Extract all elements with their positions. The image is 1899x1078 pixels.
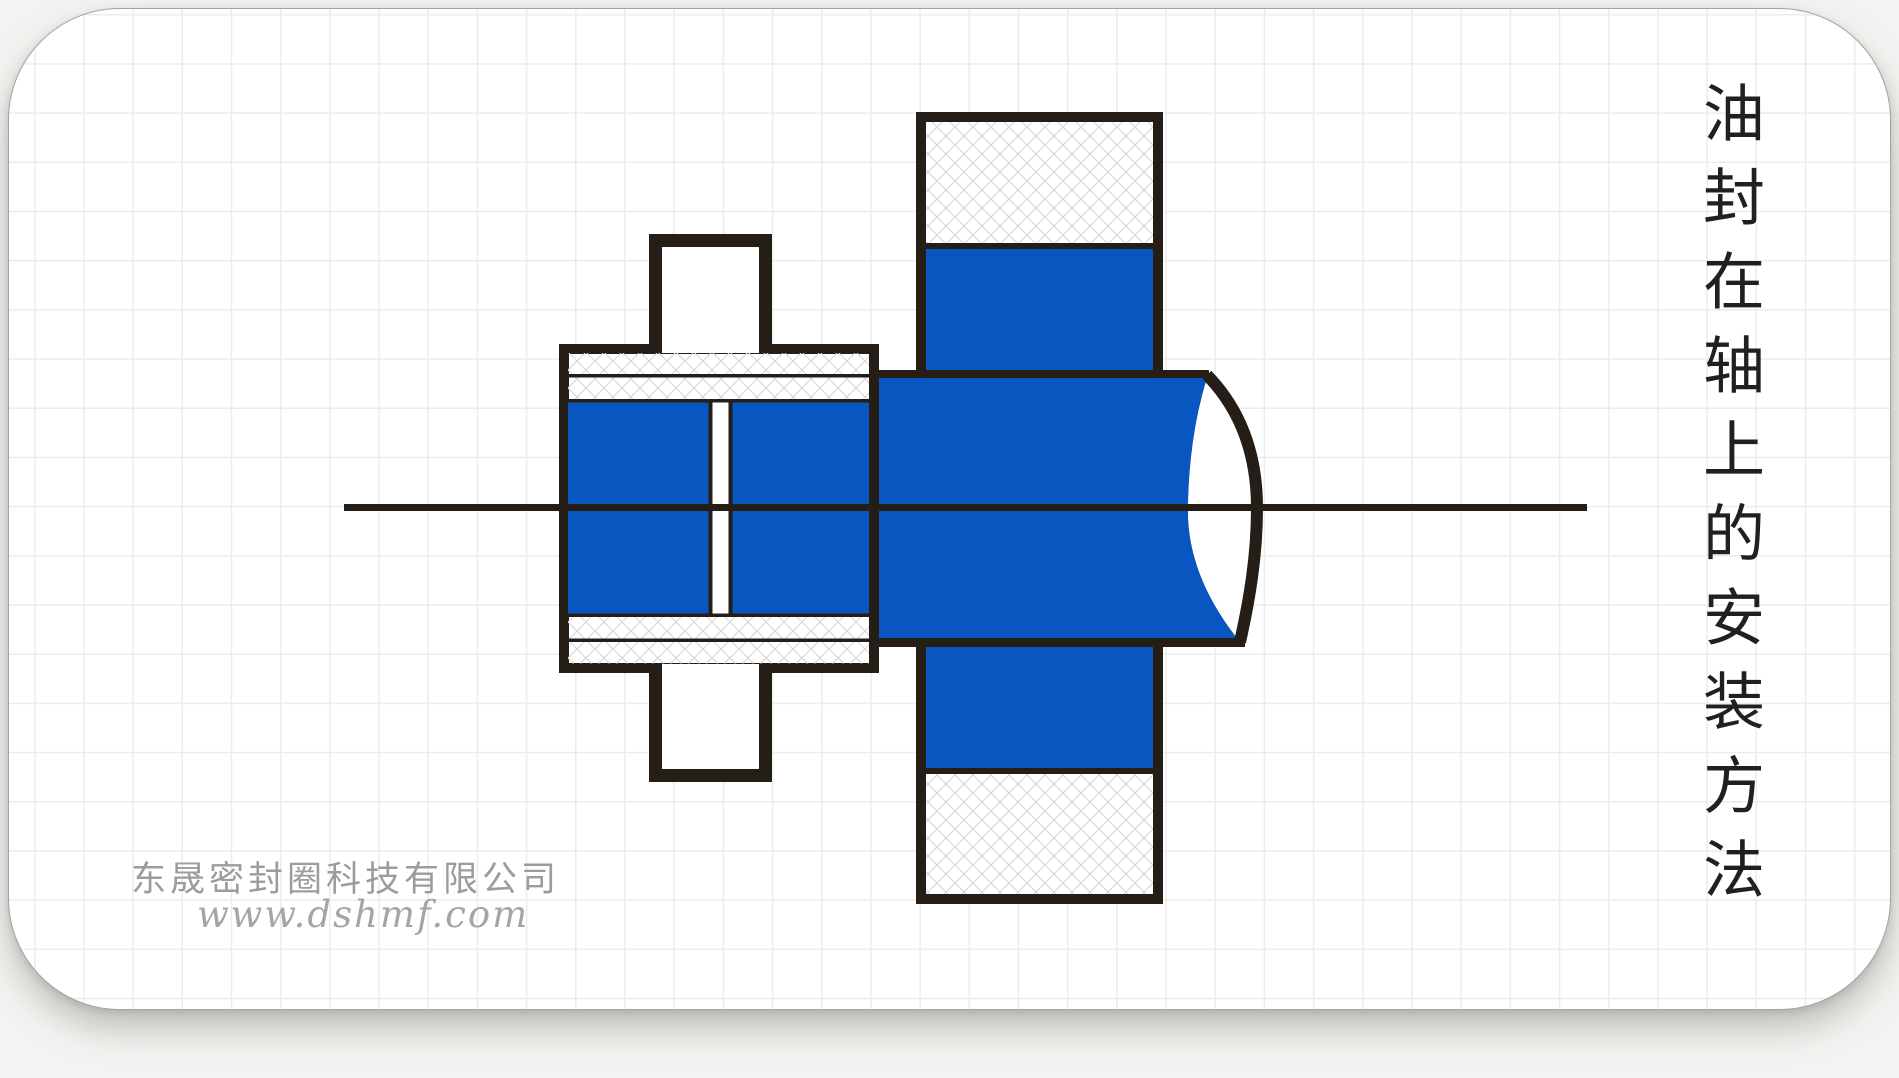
- housing-divider-bottom: [926, 768, 1153, 774]
- clearance-gap-top: [879, 342, 916, 370]
- housing-divider-top: [926, 243, 1153, 249]
- graph-paper-card: 油封在轴上的安装方法 东晟密封圈科技有限公司 www.dshmf.com: [8, 8, 1891, 1010]
- housing-hatch-top: [926, 122, 1153, 244]
- seal-top-tab: [656, 241, 766, 354]
- shaft-axis-centerline: [344, 504, 1587, 511]
- seal-bottom-tab: [656, 664, 766, 776]
- seal-hatch-band-d: [568, 642, 869, 664]
- watermark-website: www.dshmf.com: [197, 893, 529, 936]
- seal-thin-line: [568, 639, 869, 643]
- shaft-edge-bottom: [879, 638, 1245, 647]
- seal-thin-line: [568, 614, 869, 618]
- housing-hatch-bottom: [926, 774, 1153, 894]
- page-title: 油封在轴上的安装方法: [1685, 81, 1771, 961]
- housing-blue-top: [926, 249, 1153, 375]
- seal-hatch-band-a: [568, 353, 869, 374]
- seal-hatch-band-b: [568, 378, 869, 400]
- seal-thin-line: [568, 374, 869, 378]
- shaft-edge-top: [879, 370, 1209, 378]
- housing-blue-bottom: [926, 641, 1153, 768]
- clearance-gap-bottom: [879, 647, 916, 675]
- seal-hatch-band-c: [568, 617, 869, 639]
- seal-thin-line: [568, 399, 869, 403]
